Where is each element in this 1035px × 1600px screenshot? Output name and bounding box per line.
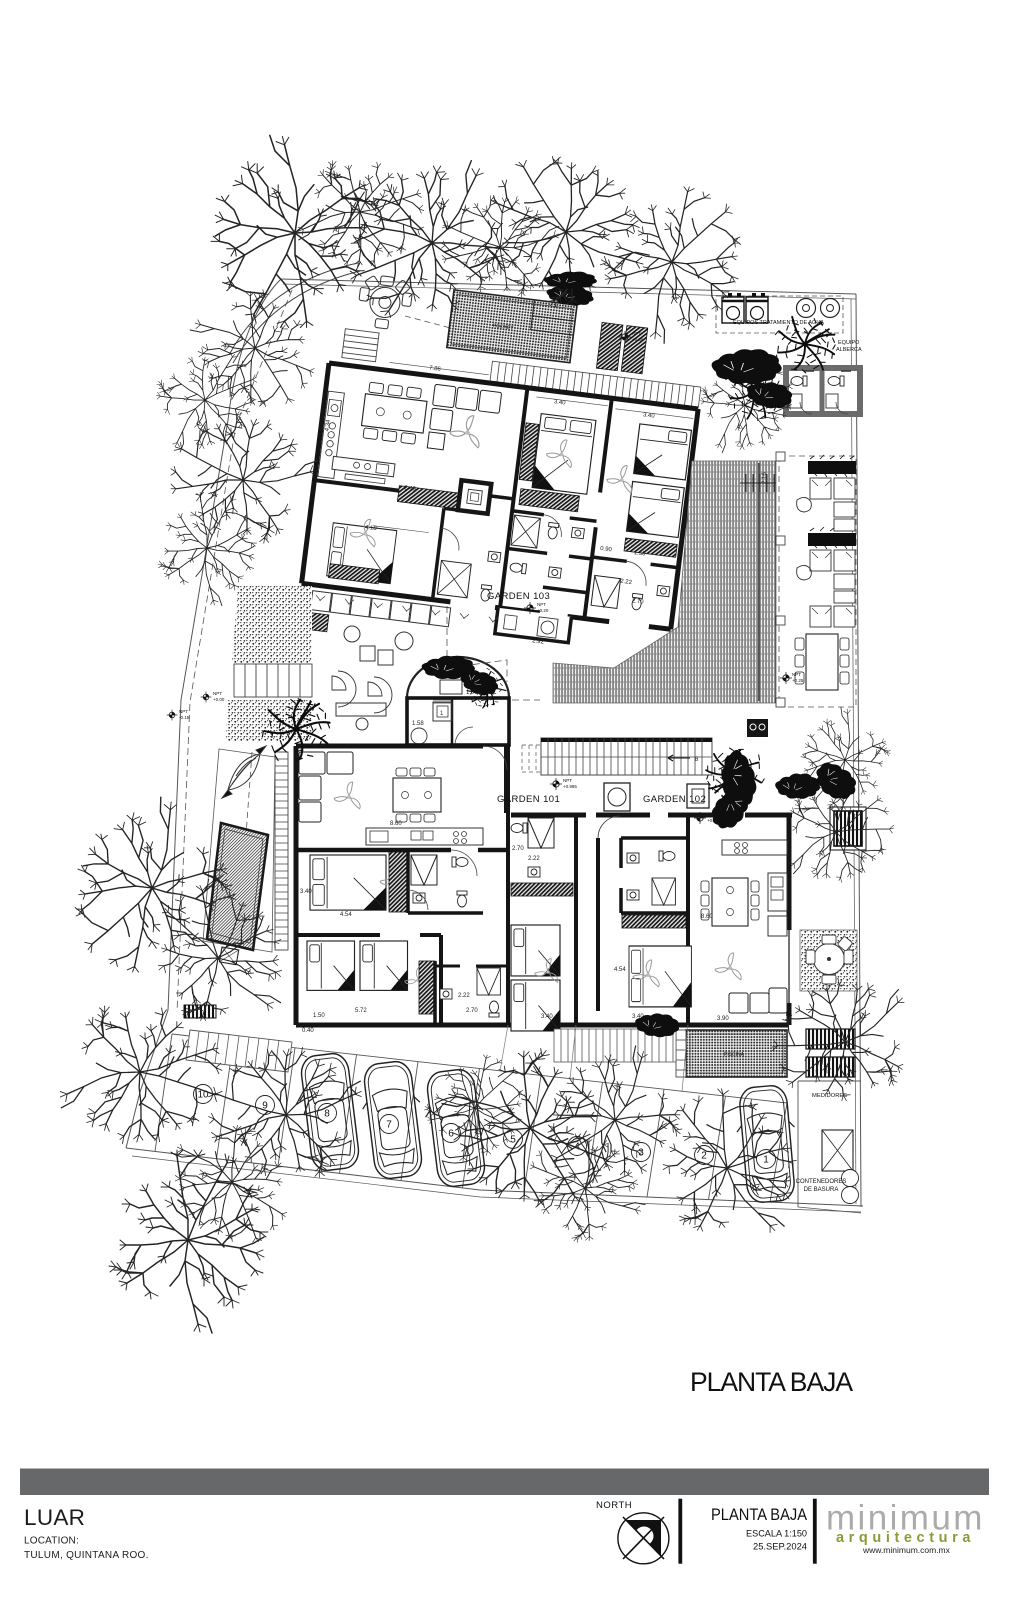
svg-text:ESCALA 1:150: ESCALA 1:150 bbox=[746, 1529, 807, 1540]
svg-text:+0.985: +0.985 bbox=[563, 784, 577, 789]
svg-text:-0.15: -0.15 bbox=[179, 715, 190, 720]
svg-text:8: 8 bbox=[324, 1109, 330, 1120]
svg-text:NPT: NPT bbox=[537, 602, 546, 607]
svg-text:GARDEN 103: GARDEN 103 bbox=[487, 591, 550, 602]
svg-text:TULUM, QUINTANA ROO.: TULUM, QUINTANA ROO. bbox=[24, 1550, 149, 1561]
svg-text:NPT: NPT bbox=[632, 331, 641, 336]
svg-text:4.54: 4.54 bbox=[340, 912, 352, 918]
svg-text:8.60: 8.60 bbox=[701, 914, 713, 920]
svg-text:2.22: 2.22 bbox=[458, 993, 470, 999]
svg-text:2.22: 2.22 bbox=[528, 856, 540, 862]
svg-text:2: 2 bbox=[701, 1151, 707, 1162]
svg-text:2.16: 2.16 bbox=[762, 472, 768, 484]
svg-text:NPT: NPT bbox=[792, 672, 801, 677]
svg-text:2.70: 2.70 bbox=[466, 1008, 478, 1014]
svg-text:1.50: 1.50 bbox=[313, 1013, 325, 1019]
svg-text:3.40: 3.40 bbox=[541, 1014, 553, 1020]
svg-text:GARDEN 102: GARDEN 102 bbox=[643, 794, 706, 805]
svg-text:www.minimum.com.mx: www.minimum.com.mx bbox=[862, 1545, 951, 1555]
svg-text:4.54: 4.54 bbox=[614, 967, 626, 973]
svg-text:NORTH: NORTH bbox=[596, 1500, 632, 1511]
svg-text:5.72: 5.72 bbox=[355, 1008, 367, 1014]
svg-text:3.40: 3.40 bbox=[300, 889, 312, 895]
svg-text:+0.35: +0.35 bbox=[632, 337, 644, 342]
svg-text:+0.00: +0.00 bbox=[213, 697, 225, 702]
svg-text:3.90: 3.90 bbox=[717, 1016, 729, 1022]
svg-text:5: 5 bbox=[510, 1135, 516, 1146]
svg-text:0.40: 0.40 bbox=[302, 1028, 314, 1034]
svg-text:LUAR: LUAR bbox=[24, 1505, 85, 1530]
svg-text:6: 6 bbox=[448, 1129, 454, 1140]
svg-text:LOCATION:: LOCATION: bbox=[24, 1536, 79, 1547]
svg-text:8.60: 8.60 bbox=[390, 821, 402, 827]
svg-text:PLANTA BAJA: PLANTA BAJA bbox=[711, 1505, 808, 1524]
svg-text:+0.25: +0.25 bbox=[792, 678, 804, 683]
svg-text:PLANTA BAJA: PLANTA BAJA bbox=[690, 1367, 853, 1397]
svg-text:NPT: NPT bbox=[179, 709, 188, 714]
svg-text:CONTENEDORES: CONTENEDORES bbox=[796, 1179, 847, 1185]
svg-text:DE BASURA: DE BASURA bbox=[804, 1187, 839, 1193]
svg-text:PISCINA: PISCINA bbox=[724, 1052, 745, 1058]
svg-text:7: 7 bbox=[386, 1120, 392, 1131]
svg-text:2.70: 2.70 bbox=[512, 846, 524, 852]
svg-text:+0.20: +0.20 bbox=[537, 608, 549, 613]
svg-text:NPT: NPT bbox=[563, 778, 572, 783]
svg-text:ALBERCA: ALBERCA bbox=[836, 347, 862, 353]
svg-text:arquitectura: arquitectura bbox=[836, 1530, 975, 1546]
svg-text:1: 1 bbox=[763, 1155, 769, 1166]
svg-text:NPT: NPT bbox=[213, 691, 222, 696]
svg-text:EQUIPO: EQUIPO bbox=[838, 340, 860, 346]
svg-text:1.58: 1.58 bbox=[412, 721, 424, 727]
svg-text:25.SEP.2024: 25.SEP.2024 bbox=[753, 1542, 807, 1553]
